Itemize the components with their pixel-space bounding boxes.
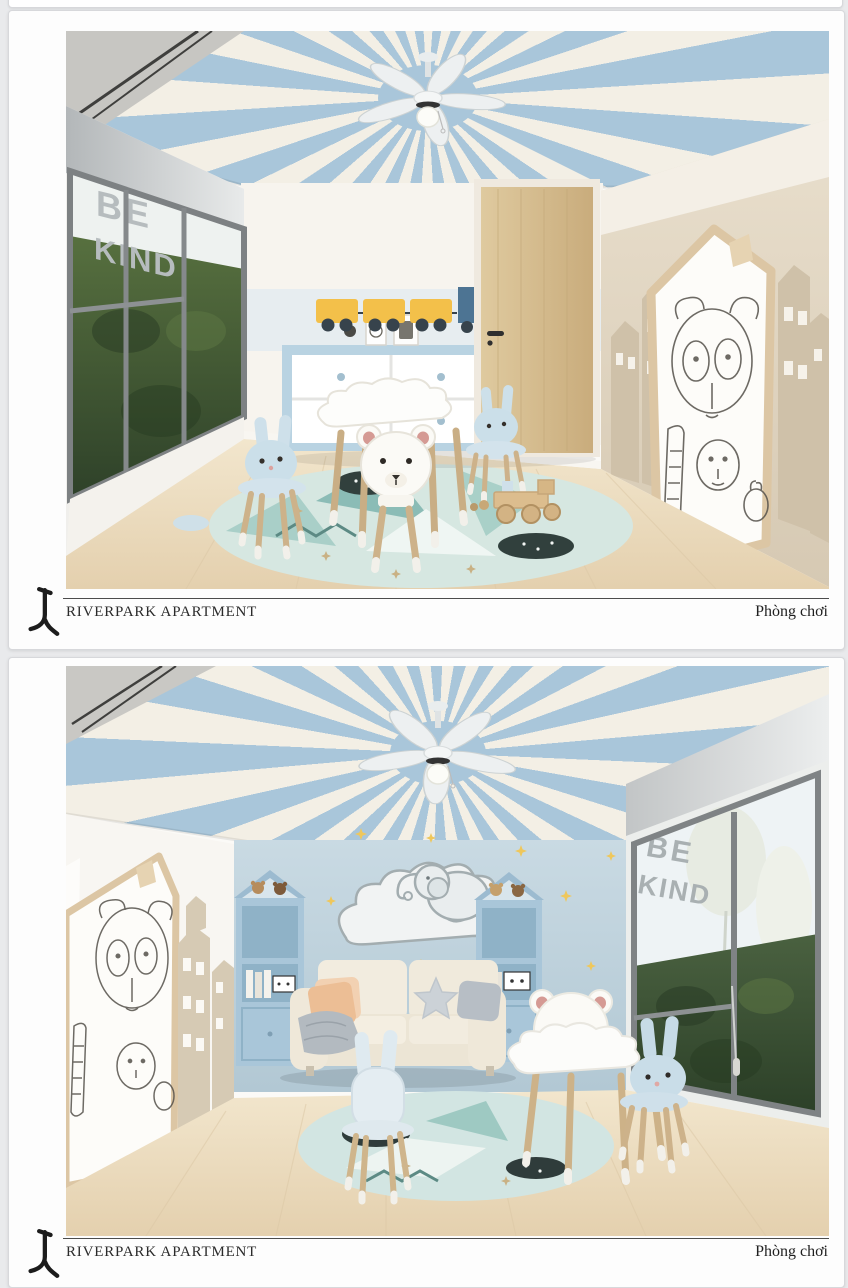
ceiling-fan-icon-2 (356, 701, 520, 804)
caption-bar: RIVERPARK APARTMENT Phòng chơi (23, 586, 829, 649)
caption-rule-2 (63, 1238, 829, 1239)
riverpark-logo-icon (23, 582, 61, 640)
room-label: Phòng chơi (755, 603, 828, 621)
door-handle (487, 331, 504, 336)
brand-text: RIVERPARK APARTMENT (66, 604, 257, 621)
scene-1: BE KIND (66, 31, 829, 589)
playroom-render-1: BE KIND (66, 31, 829, 589)
ceiling-fan-icon (353, 51, 506, 147)
room-label-2: Phòng chơi (755, 1243, 828, 1261)
render-sheet-bottom: BE KIND (8, 657, 845, 1288)
scene-2: BE KIND (66, 666, 829, 1236)
caption-rule (63, 598, 829, 599)
corner-soffit-2 (66, 666, 216, 744)
render-sheet-top: BE KIND (8, 10, 845, 650)
caption-bar-2: RIVERPARK APARTMENT Phòng chơi (23, 1230, 829, 1281)
previous-sheet-edge (8, 0, 843, 8)
brand-text-2: RIVERPARK APARTMENT (66, 1244, 257, 1261)
riverpark-logo-icon-2 (23, 1224, 61, 1282)
house-drawing-board (66, 856, 176, 1186)
page: { "page": {"background_color": "#e9eaec"… (0, 0, 848, 1280)
toy-stool (173, 515, 209, 531)
playroom-render-2: BE KIND (66, 666, 829, 1236)
